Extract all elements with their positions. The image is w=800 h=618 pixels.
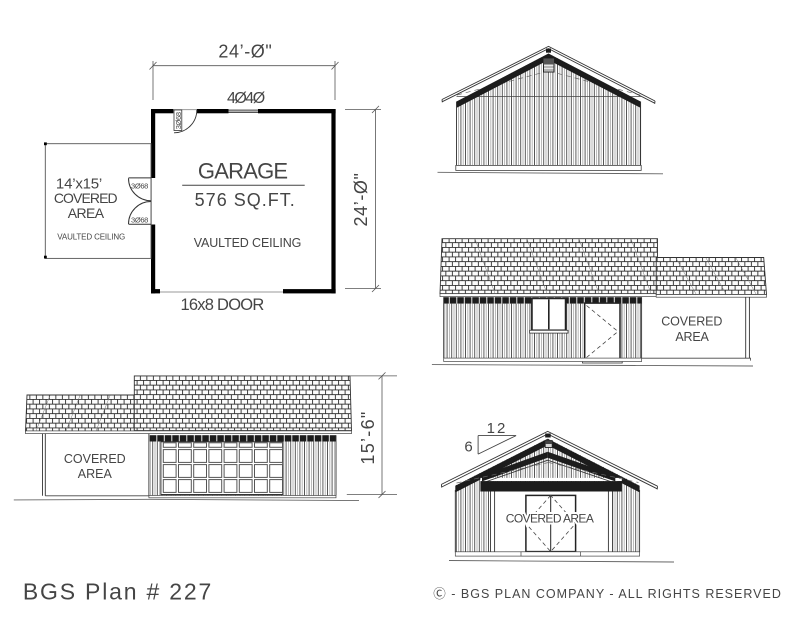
svg-text:24’-Ø": 24’-Ø" [218, 42, 272, 62]
svg-text:COVERED: COVERED [661, 314, 722, 328]
svg-text:BGS Plan # 227: BGS Plan # 227 [23, 579, 213, 605]
svg-text:3Ø68: 3Ø68 [131, 216, 148, 225]
svg-text:COVERED: COVERED [54, 190, 118, 206]
svg-text:16x8 DOOR: 16x8 DOOR [180, 296, 264, 314]
svg-text:6: 6 [464, 439, 472, 456]
svg-text:24’-Ø": 24’-Ø" [351, 172, 371, 226]
svg-text:COVERED: COVERED [64, 452, 126, 466]
svg-text:15’-6": 15’-6" [358, 410, 378, 464]
svg-text:12: 12 [487, 420, 508, 437]
svg-text:AREA: AREA [78, 467, 113, 481]
svg-text:VAULTED CEILING: VAULTED CEILING [194, 236, 301, 250]
svg-text:VAULTED CEILING: VAULTED CEILING [57, 232, 125, 241]
svg-text:3Ø68: 3Ø68 [174, 112, 183, 129]
svg-text:3Ø68: 3Ø68 [131, 182, 148, 191]
svg-text:AREA: AREA [675, 330, 709, 344]
svg-text:COVERED AREA: COVERED AREA [506, 512, 594, 526]
svg-text:4Ø4Ø: 4Ø4Ø [227, 90, 265, 107]
svg-text:576 SQ.FT.: 576 SQ.FT. [195, 190, 296, 210]
svg-text:Ⓒ - BGS PLAN COMPANY - ALL RIG: Ⓒ - BGS PLAN COMPANY - ALL RIGHTS RESERV… [433, 587, 782, 601]
svg-text:AREA: AREA [68, 205, 105, 221]
svg-text:GARAGE: GARAGE [198, 159, 287, 184]
